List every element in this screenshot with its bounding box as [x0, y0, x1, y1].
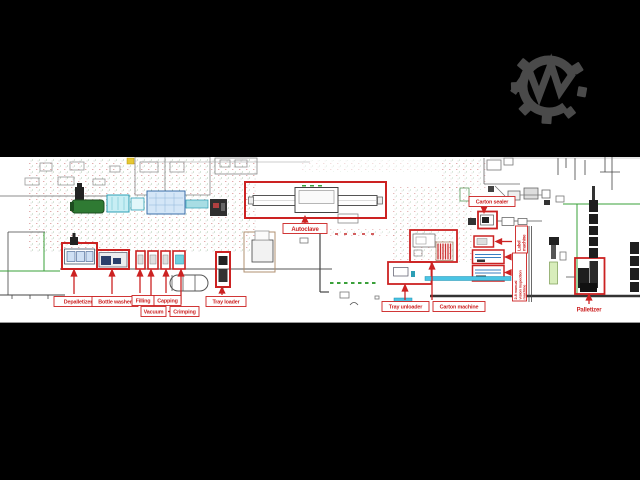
label-carton-sealer: Carton sealer: [469, 197, 515, 207]
small-hopper: [75, 187, 84, 200]
svg-text:machine: machine: [522, 234, 527, 251]
svg-text:Depalletizer: Depalletizer: [64, 300, 94, 306]
label-label-machine: Label machine: [516, 226, 528, 253]
label-tray-unloader: Tray unloader: [382, 302, 429, 312]
label-bottle-washer: Bottle washer: [92, 297, 138, 307]
label-tray-loader: Tray loader: [206, 297, 246, 307]
label-autoclave: Autoclave: [283, 224, 327, 234]
vertical-column-machine: [589, 186, 598, 258]
label-crimping: Crimping: [170, 307, 199, 317]
label-machine-target-box: [474, 236, 494, 247]
palletizer-box: [566, 258, 605, 294]
gear-m-logo-icon: [503, 46, 595, 126]
tray-loader-box: [216, 252, 230, 292]
filling-box: [136, 251, 145, 269]
label-filling: Filling: [132, 296, 154, 306]
label-inspection-machine: 2-8 manual vision inspection machine: [513, 253, 527, 301]
svg-text:Vacuum: Vacuum: [144, 310, 164, 316]
far-right-column-machine: [630, 242, 639, 292]
crimping-box: [173, 251, 185, 269]
cyan-conveyor-stub: [394, 298, 412, 302]
label-carton-machine: Carton machine: [433, 302, 485, 312]
buffer-tank: [170, 275, 208, 291]
inspection-machine-box-1: [473, 250, 505, 264]
svg-text:Autoclave: Autoclave: [291, 227, 319, 233]
svg-text:Carton machine: Carton machine: [440, 305, 479, 311]
svg-text:Tray loader: Tray loader: [212, 300, 240, 306]
svg-text:Bottle washer: Bottle washer: [98, 300, 132, 306]
label-vacuum: Vacuum: [141, 307, 166, 317]
svg-text:Carton sealer: Carton sealer: [476, 200, 510, 206]
svg-text:Tray unloader: Tray unloader: [389, 305, 423, 311]
vacuum-box: [161, 251, 170, 269]
label-capping: Capping: [154, 296, 181, 306]
screenshot-stage: Depalletizer Bottle washer Filling Cappi…: [0, 0, 640, 480]
svg-text:Crimping: Crimping: [173, 310, 195, 316]
capping-box: [148, 251, 158, 269]
svg-text:Capping: Capping: [157, 299, 178, 305]
floor-plan-image: Depalletizer Bottle washer Filling Cappi…: [0, 157, 640, 323]
carton-sealer-box: [468, 212, 542, 229]
blue-washer-unit: [147, 191, 185, 214]
bottle-washer-box: [97, 250, 129, 269]
autoclave-equipment: [245, 182, 386, 218]
label-palletizer: Palletizer: [577, 308, 603, 314]
conveyor-dash-marks: [330, 233, 376, 284]
floor-plan-svg: Depalletizer Bottle washer Filling Cappi…: [0, 157, 640, 322]
svg-text:Palletizer: Palletizer: [577, 308, 603, 314]
green-cylinder-machine: [72, 200, 104, 213]
cyan-conveyor: [425, 277, 511, 281]
small-side-machine: [549, 237, 559, 284]
watermark-logo: [503, 46, 595, 126]
svg-text:Filling: Filling: [136, 299, 151, 305]
letterbox-bottom: [0, 323, 640, 480]
svg-text:machine: machine: [522, 284, 527, 300]
